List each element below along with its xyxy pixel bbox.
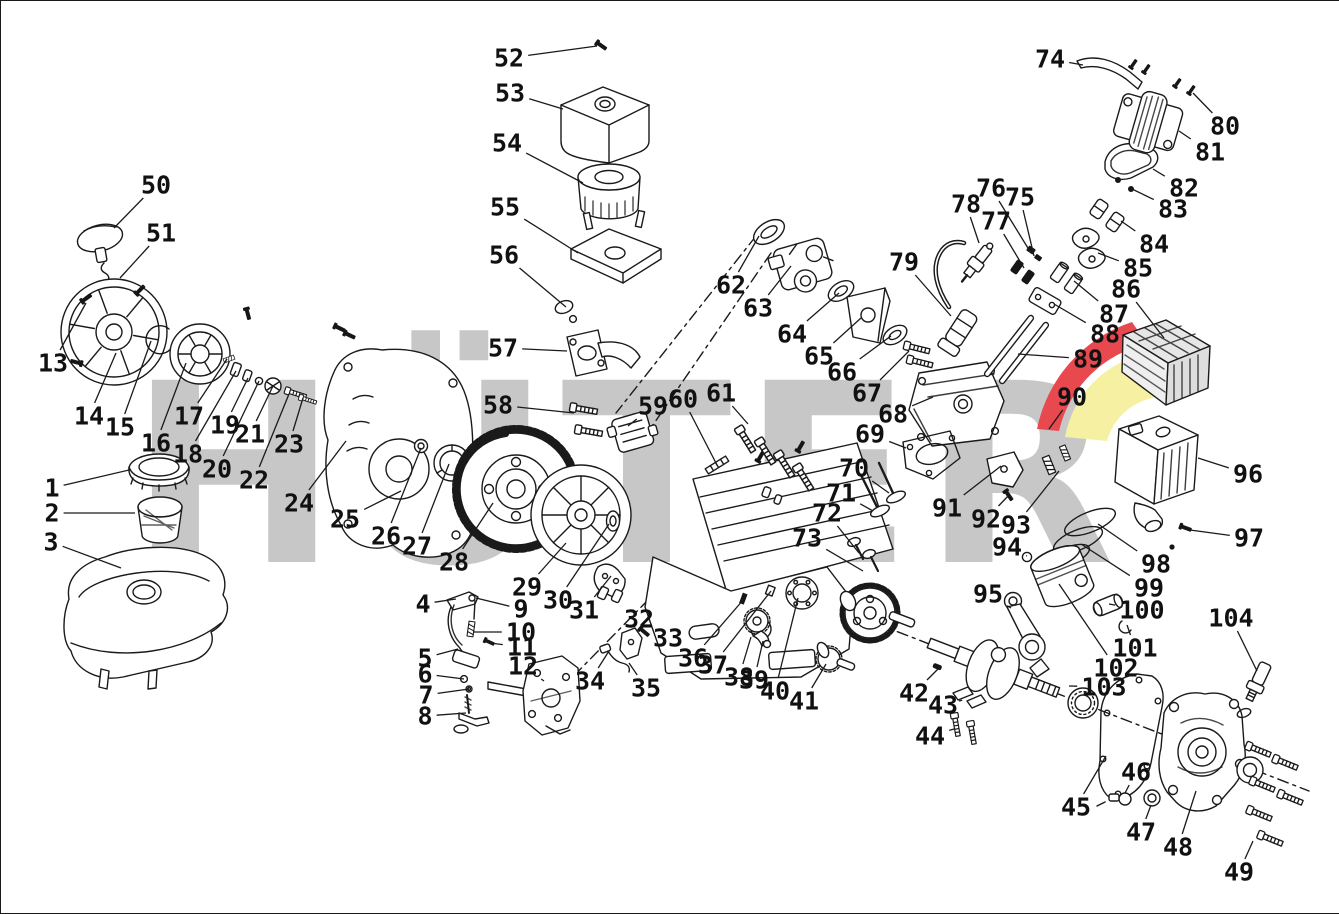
part-label-24: 24 (284, 489, 314, 518)
part-label-44: 44 (915, 722, 945, 751)
part-label-63: 63 (743, 294, 773, 323)
part-label-18: 18 (173, 440, 203, 469)
leader-line-98 (1098, 524, 1137, 551)
crankshaft-group (919, 620, 1098, 745)
muffler-group (1115, 416, 1198, 550)
leader-line-50 (114, 198, 143, 228)
part-label-50: 50 (141, 171, 171, 200)
leader-line-78 (970, 217, 979, 243)
part-labels-layer: 1234567891011121314151617181920212223242… (38, 44, 1264, 887)
part-label-42: 42 (899, 679, 929, 708)
leader-line-104 (1237, 631, 1257, 671)
part-label-95: 95 (973, 580, 1003, 609)
part-label-40: 40 (760, 677, 790, 706)
part-label-80: 80 (1210, 112, 1240, 141)
leader-line-21 (256, 386, 273, 421)
part-label-31: 31 (569, 596, 599, 625)
part-label-43: 43 (928, 691, 958, 720)
part-label-78: 78 (951, 190, 981, 219)
part-label-17: 17 (174, 402, 204, 431)
leader-line-54 (526, 153, 583, 183)
part-label-35: 35 (631, 674, 661, 703)
part-label-53: 53 (495, 79, 525, 108)
leader-lines-layer (60, 46, 1257, 859)
part-label-48: 48 (1163, 833, 1193, 862)
part-label-12: 12 (508, 652, 538, 681)
leader-line-23 (293, 398, 303, 431)
part-label-61: 61 (706, 379, 736, 408)
part-label-104: 104 (1208, 604, 1253, 633)
leader-line-80 (1193, 93, 1212, 113)
part-label-60: 60 (668, 385, 698, 414)
part-label-23: 23 (274, 430, 304, 459)
part-label-25: 25 (330, 505, 360, 534)
part-label-26: 26 (371, 522, 401, 551)
part-label-45: 45 (1061, 793, 1091, 822)
leader-line-97 (1190, 530, 1230, 535)
part-label-92: 92 (971, 505, 1001, 534)
part-label-56: 56 (489, 241, 519, 270)
part-label-28: 28 (439, 548, 469, 577)
part-label-22: 22 (239, 466, 269, 495)
leader-line-57 (522, 349, 567, 351)
part-label-47: 47 (1126, 818, 1156, 847)
part-label-94: 94 (992, 533, 1022, 562)
leader-line-61 (732, 406, 748, 424)
part-label-3: 3 (43, 528, 58, 557)
leader-line-53 (529, 99, 563, 109)
part-label-41: 41 (789, 687, 819, 716)
part-label-91: 91 (932, 494, 962, 523)
leader-line-84 (1121, 221, 1135, 231)
leader-line-77 (1004, 234, 1024, 268)
leader-line-49 (1245, 841, 1253, 859)
part-label-8: 8 (417, 702, 432, 731)
leader-line-44 (949, 729, 954, 730)
part-label-34: 34 (575, 667, 605, 696)
leader-line-60 (690, 412, 717, 465)
leader-line-96 (1198, 458, 1229, 468)
leader-line-87 (1074, 281, 1098, 301)
part-label-103: 103 (1081, 673, 1126, 702)
diagram-canvas: HÜTER (0, 0, 1339, 914)
leader-line-58 (517, 407, 574, 413)
part-label-15: 15 (105, 413, 135, 442)
part-label-81: 81 (1195, 138, 1225, 167)
flywheel-group (456, 429, 631, 565)
part-label-46: 46 (1121, 758, 1151, 787)
leader-line-52 (528, 46, 597, 55)
spark-plug-group (936, 239, 1043, 357)
leader-line-93 (1026, 471, 1059, 512)
part-label-58: 58 (483, 391, 513, 420)
part-label-90: 90 (1057, 383, 1087, 412)
part-label-69: 69 (855, 420, 885, 449)
part-label-14: 14 (74, 402, 104, 431)
part-label-54: 54 (492, 129, 522, 158)
parts-diagram-svg: 1234567891011121314151617181920212223242… (1, 1, 1339, 913)
leader-line-51 (120, 246, 149, 278)
fuel-tank-group (64, 454, 227, 689)
leader-line-83 (1132, 189, 1154, 200)
leader-line-34 (598, 651, 609, 668)
leader-line-1 (64, 470, 129, 485)
part-label-73: 73 (792, 524, 822, 553)
part-label-55: 55 (490, 193, 520, 222)
part-label-29: 29 (512, 573, 542, 602)
part-label-74: 74 (1035, 45, 1065, 74)
leader-line-79 (915, 275, 951, 316)
leader-line-7 (438, 689, 469, 693)
leader-line-82 (1153, 169, 1165, 176)
part-label-96: 96 (1233, 460, 1263, 489)
leader-line-70 (872, 481, 889, 493)
governor-arm-group (447, 592, 496, 733)
leader-line-6 (437, 676, 464, 680)
leader-line-19 (231, 378, 248, 412)
part-label-4: 4 (415, 590, 430, 619)
intake-manifold (567, 330, 640, 376)
part-label-62: 62 (716, 271, 746, 300)
part-label-100: 100 (1119, 596, 1164, 625)
part-label-77: 77 (981, 207, 1011, 236)
part-label-49: 49 (1224, 858, 1254, 887)
part-label-27: 27 (402, 532, 432, 561)
leader-line-62 (738, 236, 759, 272)
part-label-64: 64 (777, 320, 807, 349)
part-label-20: 20 (202, 455, 232, 484)
leader-line-64 (807, 293, 839, 321)
part-label-13: 13 (38, 349, 68, 378)
recoil-starter (61, 279, 317, 405)
part-label-2: 2 (44, 499, 59, 528)
leader-line-9 (476, 598, 509, 606)
leader-line-88 (1054, 304, 1086, 323)
part-label-97: 97 (1234, 524, 1264, 553)
part-label-57: 57 (488, 334, 518, 363)
leader-line-67 (880, 351, 909, 380)
part-label-79: 79 (889, 248, 919, 277)
part-label-51: 51 (146, 219, 176, 248)
part-label-16: 16 (141, 429, 171, 458)
leader-line-81 (1179, 131, 1191, 139)
part-label-32: 32 (624, 605, 654, 634)
leader-line-56 (520, 268, 567, 307)
leader-line-55 (524, 219, 578, 253)
leader-line-43 (959, 700, 962, 701)
part-label-89: 89 (1073, 345, 1103, 374)
air-filter-group (553, 39, 661, 322)
part-label-59: 59 (638, 392, 668, 421)
part-label-21: 21 (235, 420, 265, 449)
part-label-52: 52 (494, 44, 524, 73)
part-label-83: 83 (1158, 195, 1188, 224)
